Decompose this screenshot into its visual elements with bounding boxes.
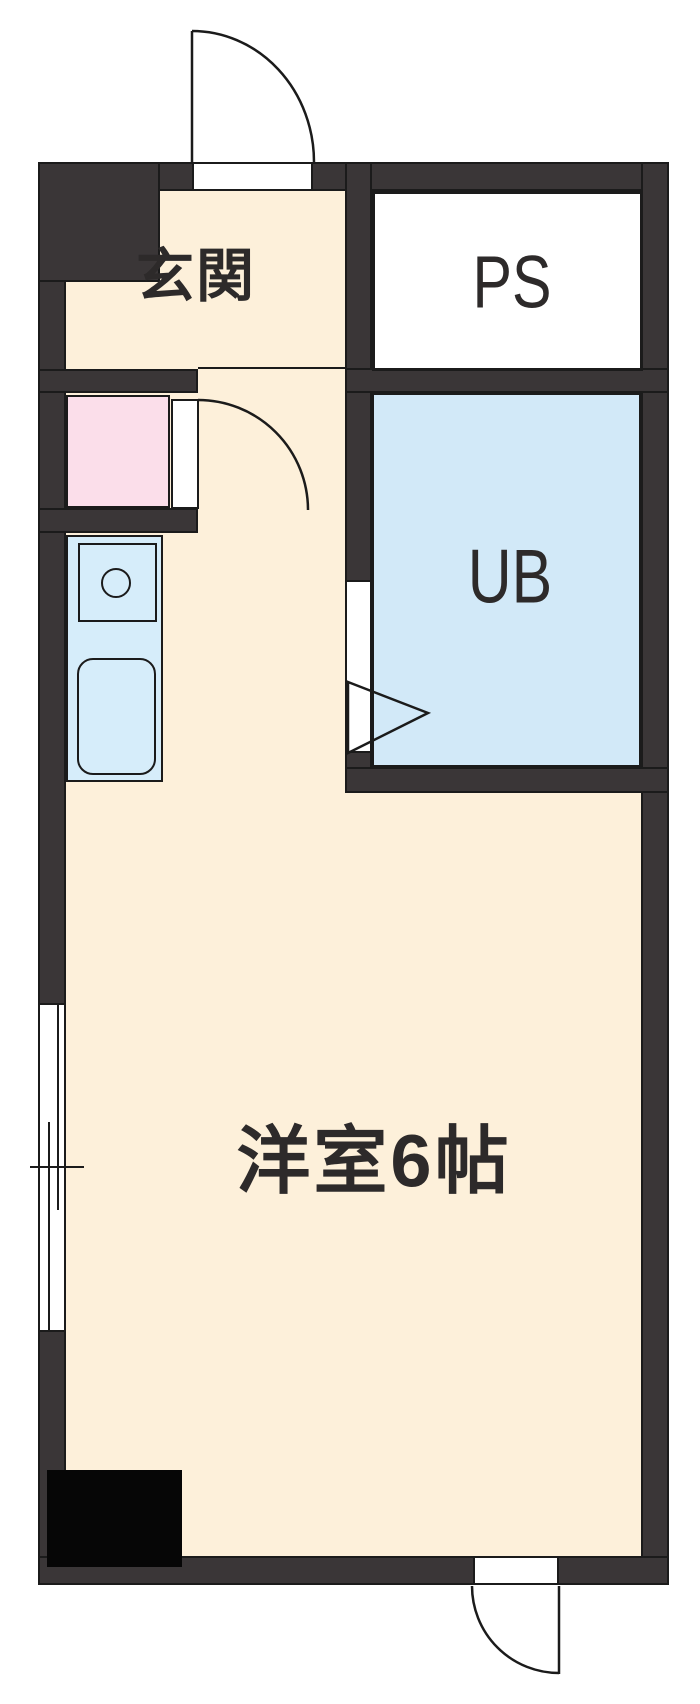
wall-genkan-south: [38, 369, 198, 393]
genkan-label: 玄関: [136, 229, 256, 313]
floor-plan: 玄関 PS UB 洋室6帖: [0, 0, 700, 1704]
wall-nook-south: [38, 508, 198, 533]
washer-pad: [66, 395, 170, 508]
window-pane-line-lower: [48, 1122, 50, 1330]
shaft-box: [47, 1470, 182, 1567]
wall-ps-ub-divider: [345, 368, 669, 393]
entrance-door-arc-icon: [192, 31, 314, 162]
kitchen-sink: [77, 658, 156, 775]
window-center-tick: [30, 1166, 84, 1168]
unit-bath-label: UB: [468, 534, 552, 621]
balcony-door-opening: [473, 1556, 559, 1585]
entrance-door-opening: [192, 162, 313, 191]
balcony-door-arc-icon: [472, 1586, 559, 1673]
pipe-space-label: PS: [473, 240, 552, 325]
ub-door-opening: [345, 580, 372, 753]
stove-burner-icon: [101, 568, 131, 598]
main-room-label: 洋室6帖: [236, 1102, 511, 1209]
wall-ub-south: [345, 767, 669, 793]
genkan-step-line: [198, 367, 346, 369]
window-pane-line-upper: [57, 1004, 59, 1210]
hall-door-leaf: [171, 399, 199, 509]
